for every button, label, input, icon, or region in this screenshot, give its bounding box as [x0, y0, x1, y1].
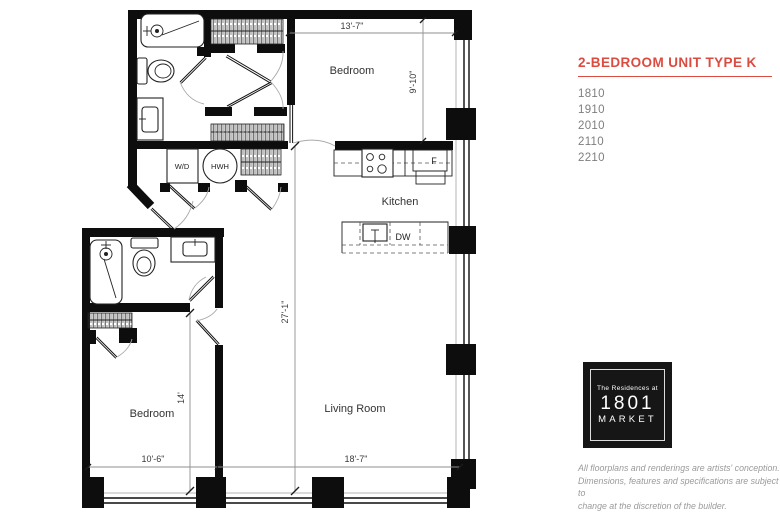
dishwasher-label: DW — [396, 232, 411, 242]
bedroom1-label: Bedroom — [330, 65, 375, 77]
vanity-sink-2 — [171, 237, 215, 262]
dim-living-room-width: 18'-7" — [218, 454, 463, 470]
brand-logo-border: The Residences at 1801 MARKET — [590, 369, 665, 441]
bedroom1-door — [290, 105, 335, 146]
svg-text:13'-7": 13'-7" — [341, 21, 364, 31]
living-room-label: Living Room — [324, 403, 385, 415]
closet-bedroom2 — [88, 313, 132, 328]
toilet-1 — [137, 58, 174, 84]
floor-list: 1810 1910 2010 2110 2210 — [578, 86, 772, 166]
brand-logo: The Residences at 1801 MARKET — [583, 362, 672, 448]
hall-closet-doors — [226, 51, 283, 109]
closet-laundry — [241, 149, 281, 175]
svg-text:10'-6": 10'-6" — [142, 454, 165, 464]
dim-unit-depth: 27'-1" — [280, 142, 299, 495]
floor-item: 1810 — [578, 86, 772, 102]
closet-hall-lower — [211, 124, 284, 141]
kitchen-island: DW — [342, 222, 448, 253]
bathroom-2 — [90, 237, 215, 304]
sidebar: 2-BEDROOM UNIT TYPE K 1810 1910 2010 211… — [578, 55, 772, 166]
toilet-2 — [131, 238, 158, 276]
bedroom2-door — [196, 309, 219, 345]
dim-bedroom1-width: 13'-7" — [286, 21, 458, 36]
water-heater-label: HWH — [211, 162, 229, 171]
bathroom1-door — [180, 57, 206, 104]
entry-door — [151, 201, 193, 230]
floorplan-page: W/D HWH — [0, 0, 780, 517]
disclaimer-line: All floorplans and renderings are artist… — [578, 463, 780, 473]
floor-item: 2210 — [578, 150, 772, 166]
logo-tagline: The Residences at — [597, 385, 658, 392]
laundry-area: W/D HWH — [167, 149, 237, 183]
bathroom2-door — [189, 276, 214, 301]
fridge: F — [413, 150, 447, 184]
bathtub-2 — [90, 240, 122, 304]
floor-item: 1910 — [578, 102, 772, 118]
floor-item: 2010 — [578, 118, 772, 134]
disclaimer-line: change at the discretion of the builder. — [578, 501, 727, 511]
bedroom2-label: Bedroom — [130, 408, 175, 420]
svg-text:14': 14' — [176, 392, 186, 404]
washer-dryer-label: W/D — [175, 162, 190, 171]
closet-hall-upper — [211, 19, 283, 44]
svg-text:9'-10": 9'-10" — [408, 71, 418, 94]
floor-item: 2110 — [578, 134, 772, 150]
fridge-label: F — [431, 156, 437, 166]
svg-text:18'-7": 18'-7" — [345, 454, 368, 464]
unit-title: 2-BEDROOM UNIT TYPE K — [578, 55, 772, 77]
dim-bedroom2-width: 10'-6" — [85, 454, 221, 470]
stove — [362, 149, 393, 177]
bathtub-1 — [141, 14, 204, 47]
logo-number: 1801 — [600, 394, 654, 413]
vanity-sink-1 — [137, 98, 163, 140]
disclaimer-text: All floorplans and renderings are artist… — [578, 462, 780, 512]
dim-bedroom1-depth: 9'-10" — [408, 17, 426, 144]
disclaimer-line: Dimensions, features and specifications … — [578, 476, 778, 499]
laundry-closet-door — [246, 186, 281, 210]
svg-text:27'-1": 27'-1" — [280, 301, 290, 324]
bathroom-1 — [137, 14, 204, 140]
logo-market: MARKET — [598, 414, 657, 425]
floorplan-drawing: W/D HWH — [0, 0, 565, 517]
kitchen-label: Kitchen — [382, 196, 419, 208]
